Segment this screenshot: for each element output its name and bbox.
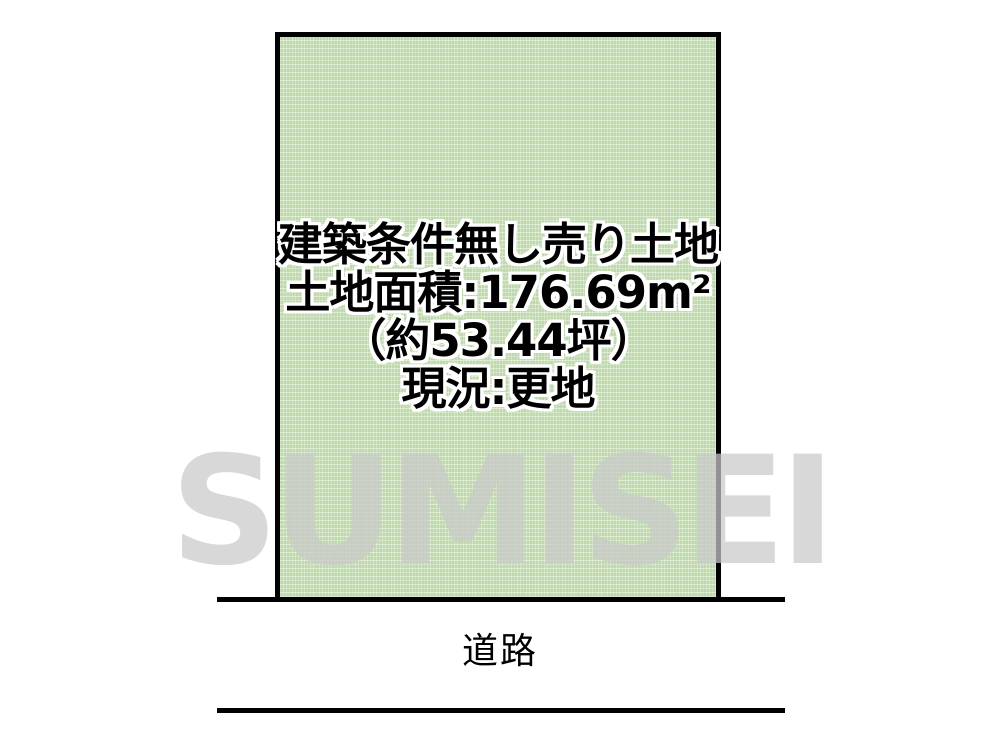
road-label: 道路	[0, 630, 1000, 674]
land-plot-diagram: 建築条件無し売り土地 土地面積:176.69m² （約53.44坪） 現況:更地…	[0, 0, 1000, 750]
land-parcel: 建築条件無し売り土地 土地面積:176.69m² （約53.44坪） 現況:更地	[275, 32, 721, 602]
parcel-area-sqm-label: 土地面積:176.69m²	[285, 269, 710, 317]
road-edge-line-top	[217, 597, 785, 602]
parcel-label-block: 建築条件無し売り土地 土地面積:176.69m² （約53.44坪） 現況:更地	[280, 37, 716, 597]
parcel-current-state-label: 現況:更地	[402, 365, 595, 413]
parcel-area-tsubo-label: （約53.44坪）	[341, 317, 654, 365]
road-edge-line-bottom	[217, 708, 785, 713]
parcel-sale-type-label: 建築条件無し売り土地	[278, 221, 718, 269]
